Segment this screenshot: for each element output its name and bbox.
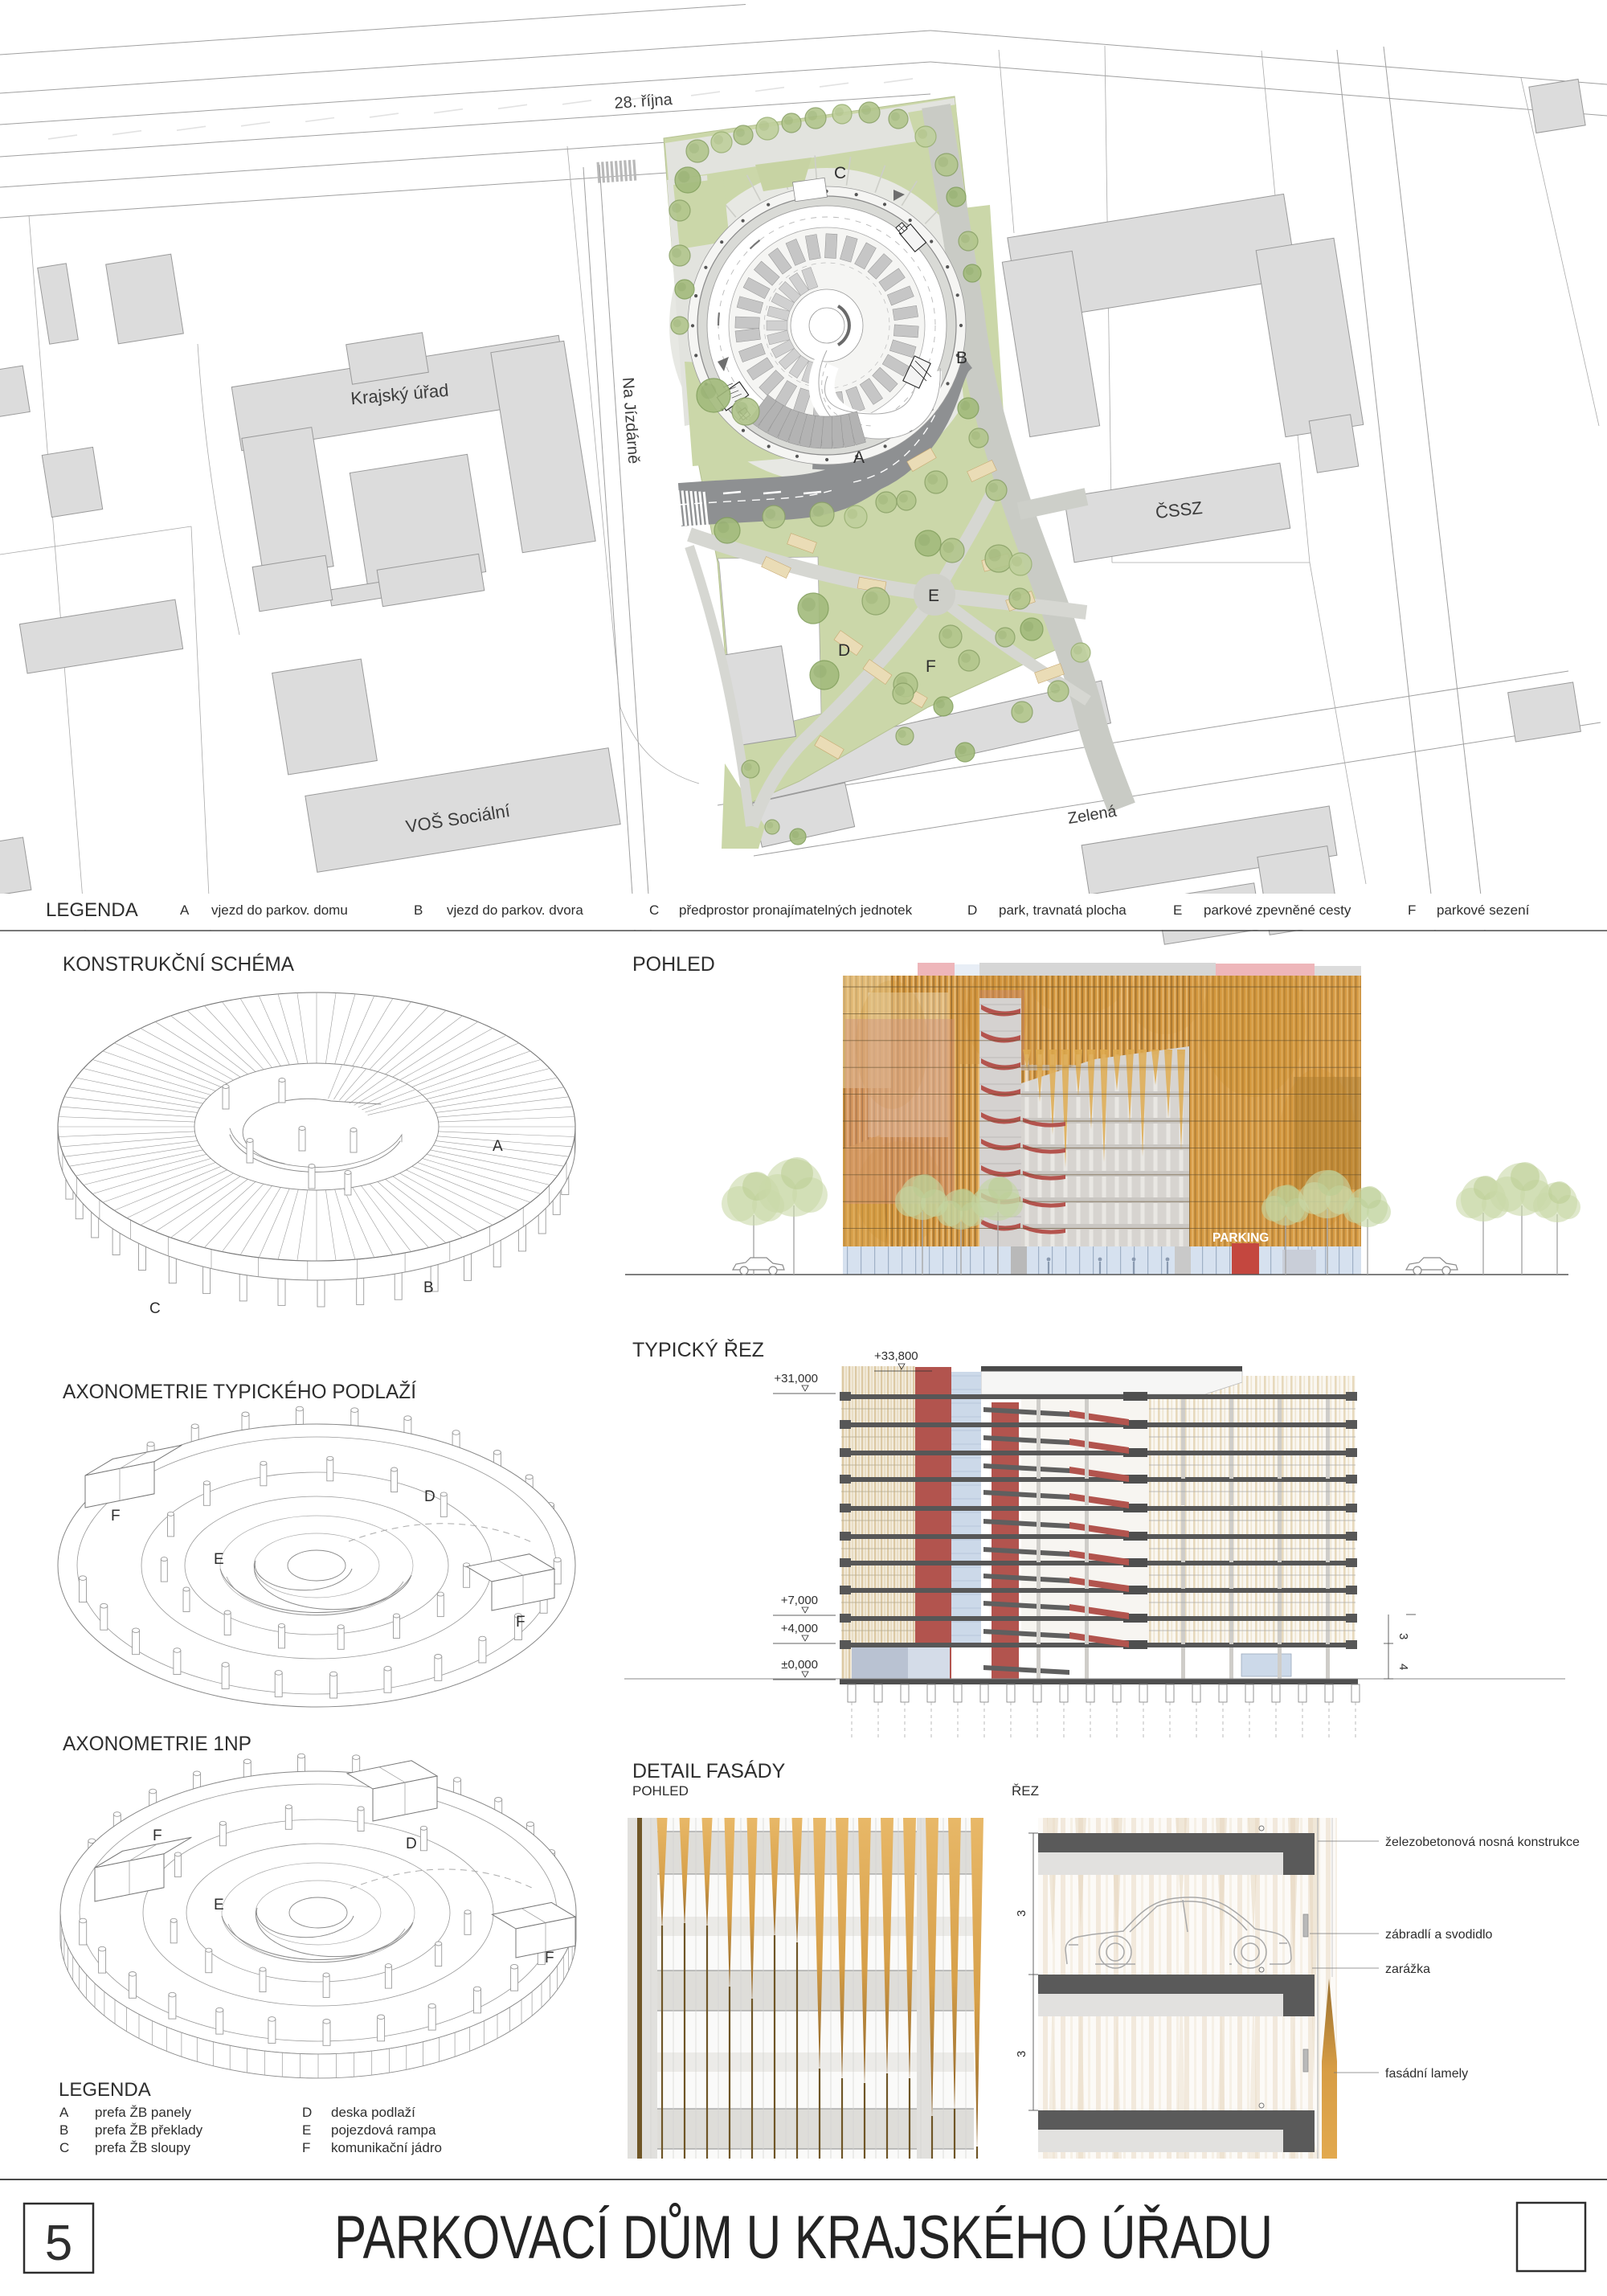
svg-text:C: C <box>649 902 659 918</box>
svg-text:4: 4 <box>1396 1664 1410 1670</box>
svg-text:B: B <box>414 902 423 918</box>
svg-text:E: E <box>1173 902 1182 918</box>
svg-text:E: E <box>302 2122 311 2138</box>
svg-text:B: B <box>423 1279 434 1296</box>
svg-text:A: A <box>493 1138 503 1155</box>
svg-text:POHLED: POHLED <box>632 1783 689 1799</box>
svg-text:C: C <box>834 164 846 182</box>
svg-text:B: B <box>59 2122 68 2138</box>
svg-text:A: A <box>180 902 190 918</box>
svg-text:F: F <box>111 1508 121 1525</box>
svg-text:KONSTRUKČNÍ SCHÉMA: KONSTRUKČNÍ SCHÉMA <box>63 952 294 976</box>
svg-text:E: E <box>214 1551 224 1568</box>
svg-text:parkové sezení: parkové sezení <box>1437 902 1530 918</box>
svg-text:vjezd do parkov. domu: vjezd do parkov. domu <box>211 902 348 918</box>
svg-text:LEGENDA: LEGENDA <box>59 2079 151 2101</box>
svg-text:A: A <box>853 448 865 467</box>
svg-text:předprostor pronajímatelných j: předprostor pronajímatelných jednotek <box>679 902 913 918</box>
svg-text:D: D <box>302 2105 312 2120</box>
svg-text:LEGENDA: LEGENDA <box>46 899 138 921</box>
svg-text:±0,000: ±0,000 <box>781 1658 818 1672</box>
svg-text:fasádní lamely: fasádní lamely <box>1385 2067 1468 2081</box>
svg-text:Zelená: Zelená <box>1066 803 1118 828</box>
svg-text:AXONOMETRIE 1NP: AXONOMETRIE 1NP <box>63 1733 251 1755</box>
svg-text:+31,000: +31,000 <box>774 1372 818 1385</box>
svg-text:AXONOMETRIE TYPICKÉHO PODLAŽÍ: AXONOMETRIE TYPICKÉHO PODLAŽÍ <box>63 1380 416 1403</box>
svg-text:pojezdová rampa: pojezdová rampa <box>331 2122 436 2138</box>
svg-text:D: D <box>406 1836 417 1852</box>
svg-text:3: 3 <box>1015 1910 1028 1917</box>
svg-text:C: C <box>59 2140 69 2155</box>
svg-text:parkové zpevněné cesty: parkové zpevněné cesty <box>1204 902 1351 918</box>
svg-text:F: F <box>153 1827 162 1844</box>
svg-text:3: 3 <box>1015 2051 1028 2057</box>
svg-text:28. října: 28. října <box>614 91 673 113</box>
svg-text:F: F <box>302 2140 310 2155</box>
svg-text:vjezd do parkov. dvora: vjezd do parkov. dvora <box>447 902 583 918</box>
svg-text:F: F <box>926 657 936 676</box>
svg-text:D: D <box>838 641 850 660</box>
svg-text:D: D <box>967 902 977 918</box>
svg-text:F: F <box>545 1950 554 1967</box>
svg-text:prefa ŽB sloupy: prefa ŽB sloupy <box>95 2140 191 2155</box>
svg-text:zarážka: zarážka <box>1385 1962 1430 1976</box>
svg-text:zábradlí a svodidlo: zábradlí a svodidlo <box>1385 1928 1493 1942</box>
svg-text:A: A <box>59 2105 69 2120</box>
svg-text:komunikační jádro: komunikační jádro <box>331 2140 442 2155</box>
svg-text:deska podlaží: deska podlaží <box>331 2105 415 2120</box>
svg-text:+4,000: +4,000 <box>781 1622 818 1635</box>
svg-text:prefa ŽB panely: prefa ŽB panely <box>95 2105 192 2120</box>
svg-text:3: 3 <box>1396 1633 1410 1639</box>
svg-text:E: E <box>928 587 939 605</box>
svg-text:C: C <box>149 1300 161 1317</box>
svg-text:POHLED: POHLED <box>632 953 715 976</box>
svg-text:PARKING: PARKING <box>1212 1231 1269 1245</box>
svg-text:PARKOVACÍ DŮM U KRAJSKÉHO ÚŘAD: PARKOVACÍ DŮM U KRAJSKÉHO ÚŘADU <box>334 2203 1273 2272</box>
svg-text:B: B <box>956 349 967 367</box>
svg-text:E: E <box>214 1897 224 1913</box>
svg-text:TYPICKÝ ŘEZ: TYPICKÝ ŘEZ <box>632 1338 764 1361</box>
svg-text:+33,800: +33,800 <box>874 1349 918 1363</box>
svg-text:park, travnatá plocha: park, travnatá plocha <box>999 902 1127 918</box>
svg-text:železobetonová nosná konstrukc: železobetonová nosná konstrukce <box>1385 1836 1580 1849</box>
svg-text:F: F <box>516 1614 525 1631</box>
svg-text:prefa ŽB překlady: prefa ŽB překlady <box>95 2122 203 2138</box>
svg-text:F: F <box>1408 902 1416 918</box>
svg-text:5: 5 <box>45 2216 72 2271</box>
svg-text:+7,000: +7,000 <box>781 1594 818 1607</box>
svg-text:DETAIL FASÁDY: DETAIL FASÁDY <box>632 1759 786 1782</box>
svg-text:D: D <box>424 1488 435 1505</box>
svg-text:Na Jízdárně: Na Jízdárně <box>619 377 642 465</box>
svg-text:ŘEZ: ŘEZ <box>1012 1783 1039 1799</box>
